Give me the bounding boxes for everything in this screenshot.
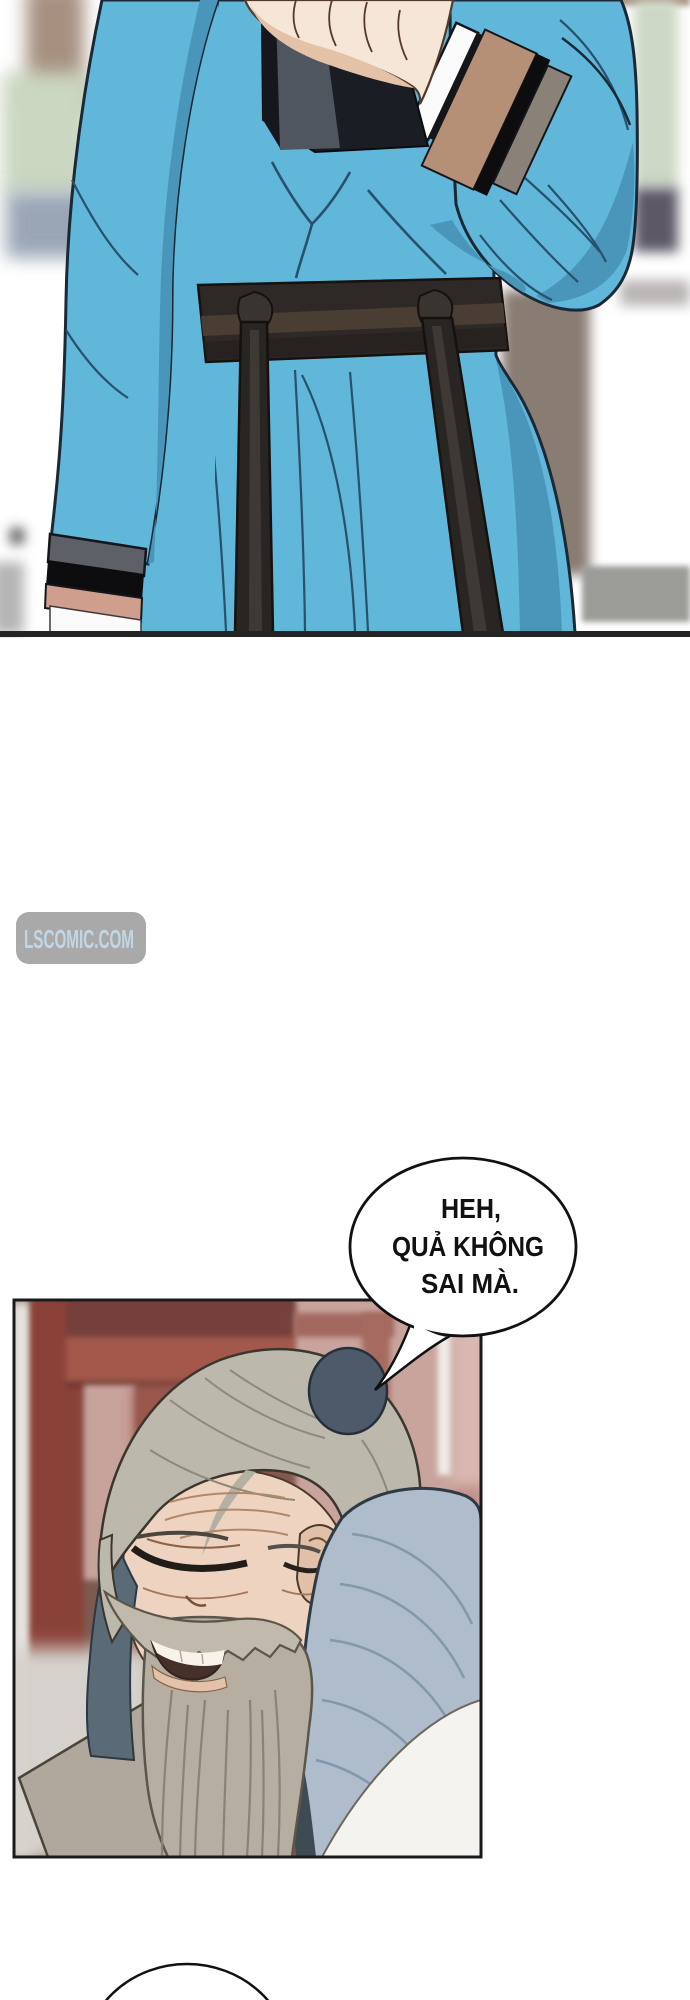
svg-text:HEH,: HEH, (441, 1193, 501, 1224)
svg-text:QUẢ KHÔNG: QUẢ KHÔNG (392, 1230, 544, 1262)
svg-text:SAI MÀ.: SAI MÀ. (421, 1268, 519, 1299)
svg-text:LSCOMIC.COM: LSCOMIC.COM (24, 924, 134, 954)
